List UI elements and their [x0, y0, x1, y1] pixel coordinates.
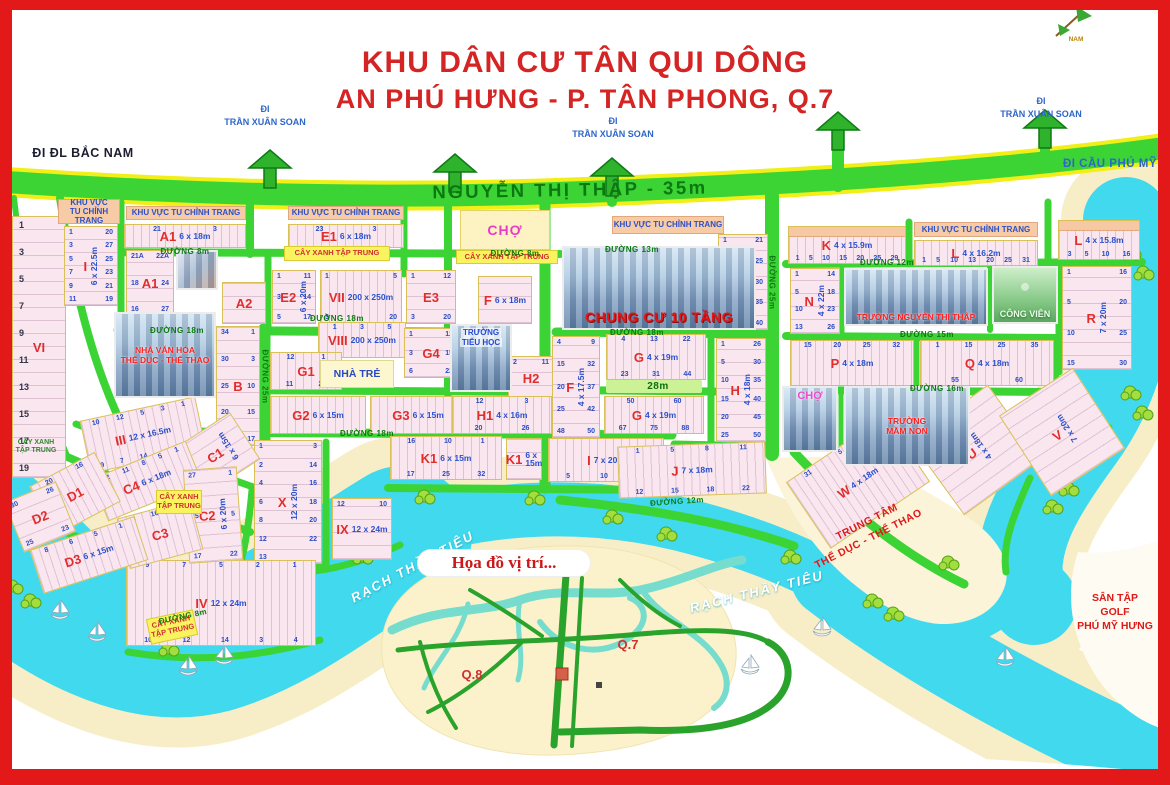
renovation-zone-box-1: KHU VỰCTU CHỈNH TRANG	[58, 199, 120, 224]
direction-di-3: ĐI	[1016, 96, 1066, 106]
block-label-III: III	[114, 432, 127, 447]
block-label-I: I	[587, 454, 591, 467]
direction-tran-xuan-soan-3: TRẦN XUÂN SOAN	[981, 109, 1101, 119]
block-K1-23: 16101172532K16 x 15m	[390, 436, 502, 480]
road-name-label: ĐƯỜNG 18m	[600, 328, 674, 337]
block-E3-8: 112320E3	[406, 270, 456, 324]
block-dimension: 4 x 18m	[849, 465, 880, 489]
block-dimension: 6 x 15m	[216, 431, 240, 462]
block-dimension: 4 x 15.8m	[1085, 236, 1123, 245]
kindergarten-box: NHÀ TRẺ	[320, 360, 394, 388]
market-box: CHỢ	[460, 210, 550, 250]
road-name-label: ĐƯỜNG 18m	[140, 326, 214, 335]
block-label-D1: D1	[65, 484, 86, 503]
block-Q-44: 11525355560Q4 x 18m	[920, 340, 1054, 386]
block-label-C1: C1	[205, 445, 226, 465]
map-title-line1: KHU DÂN CƯ TÂN QUI DÔNG	[0, 46, 1170, 80]
block-dimension: 7 x 18m	[681, 465, 712, 475]
golf-label-2: GOLF	[1072, 606, 1158, 618]
block-dimension: 12 x 24m	[211, 599, 247, 608]
green-area-box-1: CÂY XANH TẬP TRUNG	[284, 246, 390, 261]
block-header-band	[1059, 221, 1139, 231]
renovation-zone-box-2: KHU VỰC TU CHỈNH TRANG	[126, 206, 246, 220]
block-G-21: 5060677588G4 x 19m	[604, 396, 704, 434]
road-name-label: ĐƯỜNG 18m	[330, 429, 404, 438]
apartment-photo: CHUNG CƯ 10 TẦNG	[562, 246, 756, 330]
block-label-Q: Q	[965, 357, 975, 370]
block-V-46: V7 x 20m	[999, 368, 1125, 496]
block-dimension: 4 x 19m	[647, 353, 678, 362]
road-name-label: ĐƯỜNG 15m	[890, 330, 964, 339]
block-IX-28: 1210IX12 x 24m	[332, 498, 392, 560]
block-dimension: 6 x 18m	[179, 232, 210, 241]
block-dimension: 4 x 16.2m	[962, 249, 1000, 258]
golf-label-3: PHÚ MỸ HƯNG	[1058, 620, 1170, 632]
block-label-C4: C4	[121, 478, 141, 496]
road-name-label: 28m	[630, 381, 686, 393]
block-H-22: 1265301035154020452550H4 x 18m	[716, 338, 766, 442]
block-dimension: 4 x 18m	[842, 359, 873, 368]
block-label-G3: G3	[392, 409, 409, 422]
green-area-label-5: CÂY XANHTẬP TRUNG	[12, 438, 60, 456]
block-label-G1: G1	[297, 365, 314, 378]
renovation-zone-box-3: KHU VỰC TU CHỈNH TRANG	[288, 206, 404, 220]
block-N-41: 11451810231326N4 x 22m	[790, 268, 840, 334]
block-label-V: V	[1050, 427, 1064, 443]
block-label-VIII: VIII	[328, 334, 348, 347]
block-dimension: 6 x 15m	[440, 454, 471, 463]
road-name-label: ĐƯỜNG 12m	[850, 258, 924, 267]
map-label-layer: KHU DÂN CƯ TÂN QUI DÔNG AN PHÚ HƯNG - P.…	[0, 0, 1170, 785]
block-label-D3: D3	[63, 552, 83, 570]
block-dimension: 4 x 18m	[978, 359, 1009, 368]
block-H2-17: 211H2	[508, 356, 554, 400]
block-F-19: 491532203725424850F4 x 17.5m	[552, 336, 600, 438]
renovation-zone-box-4: KHU VỰC TU CHỈNH TRANG	[612, 216, 724, 234]
road-name-label: ĐƯỜNG 25m	[768, 246, 777, 320]
block-header-band	[789, 227, 905, 237]
inset-title: Họa đồ vị trí...	[418, 550, 590, 576]
park-photo: CÔNG VIÊN	[992, 266, 1058, 324]
direction-di-1: ĐI	[240, 104, 290, 114]
block-L-39: 151013202531L4 x 16.2m	[914, 240, 1038, 266]
block-X-27: 13214416618820122213X12 x 20m	[254, 440, 322, 564]
block-label-F: F	[484, 294, 492, 307]
block-dimension: 6 x 15m	[525, 451, 542, 468]
road-name-label: ĐƯỜNG 25m	[261, 340, 270, 414]
block-dimension: 6 x 18m	[495, 296, 526, 305]
inset-district-q8: Q.8	[452, 668, 492, 683]
road-name-label: ĐƯỜNG 8m	[150, 247, 220, 256]
block-label-P: P	[831, 357, 840, 370]
photo-thumbnail	[176, 250, 218, 290]
primary-school-photo: TRƯỜNGTIỂU HỌC	[450, 324, 512, 392]
block-dimension: 7 x 20m	[1055, 413, 1079, 444]
main-road-label: NGUYỄN THỊ THẬP - 35m	[400, 176, 740, 203]
block-dimension: 6 x 15m	[413, 411, 444, 420]
road-name-label: ĐƯỜNG 18m	[300, 314, 374, 323]
block-label-W: W	[835, 483, 852, 501]
nguyen-thi-thap-school-photo: TRƯỜNG NGUYỄN THỊ THẬP	[844, 268, 988, 326]
block-dimension: 6 x 18m	[140, 468, 172, 488]
block-label-K: K	[822, 239, 831, 252]
renovation-zone-box-5: KHU VỰC TU CHỈNH TRANG	[914, 222, 1038, 237]
preschool-photo: TRƯỜNGMẦM NON	[844, 386, 970, 466]
road-name-label: ĐƯỜNG 8m	[480, 249, 550, 258]
block-dimension: 6 x 18m	[340, 232, 371, 241]
block-E1-5: 233E16 x 18m	[288, 224, 404, 248]
block-L-40: 351016L4 x 15.8m	[1058, 220, 1140, 260]
block-label-K1: K1	[421, 452, 438, 465]
block-J-26: 1581112151822J7 x 18m	[617, 441, 767, 498]
block-label-G: G	[634, 351, 644, 364]
block-label-K1: K1	[506, 453, 523, 466]
block-label-VI: VI	[33, 341, 45, 354]
block-dimension: 200 x 250m	[351, 336, 396, 345]
block-label-C3: C3	[150, 526, 169, 543]
direction-di-cau-phu-my: ĐI CẦU PHÚ MỸ	[1054, 158, 1166, 171]
block-label-G: G	[632, 409, 642, 422]
market-photo: CHỢ	[782, 386, 838, 452]
block-dimension: 4 x 16m	[496, 411, 527, 420]
direction-di-dl-bac-nam: ĐI ĐL BẮC NAM	[18, 146, 148, 160]
direction-di-2: ĐI	[588, 116, 638, 126]
block-dimension: 6 x 15m	[82, 543, 114, 561]
block-A1-2: 213A16 x 18m	[124, 224, 246, 248]
block-K1-24: K16 x 15m	[506, 438, 542, 480]
block-G-20: 41322233144G4 x 19m	[606, 334, 706, 380]
block-dimension: 6 x 15m	[313, 411, 344, 420]
block-P-43: 15202532P4 x 18m	[790, 340, 914, 386]
direction-tran-xuan-soan-1: TRẦN XUÂN SOAN	[205, 117, 325, 127]
block-label-H1: H1	[477, 409, 494, 422]
block-H1-18: 1232026H14 x 16m	[452, 396, 552, 434]
culture-house-photo: NHÀ VĂN HÓATHỂ DỤC - THỂ THAO	[114, 312, 216, 398]
block-dimension: 4 x 18m	[968, 431, 993, 461]
map-canvas: KHU DÂN CƯ TÂN QUI DÔNG AN PHÚ HƯNG - P.…	[0, 0, 1170, 785]
block-label-L: L	[1074, 234, 1082, 247]
inset-district-q7: Q.7	[608, 638, 648, 653]
block-dimension: 4 x 19m	[645, 411, 676, 420]
block-label-G2: G2	[292, 409, 309, 422]
block-label-J: J	[671, 464, 679, 477]
block-F-9: F6 x 18m	[478, 276, 532, 324]
road-name-label: ĐƯỜNG 13m	[595, 245, 669, 254]
block-I-1: 1203275257239211119I6 x 22.5m	[64, 226, 118, 306]
block-R-42: 11652010251530R7 x 20m	[1062, 266, 1132, 370]
compass-label: NAM	[1058, 36, 1094, 43]
block-dimension: 4 x 15.9m	[834, 241, 872, 250]
block-label-A2: A2	[236, 297, 253, 310]
road-name-label: ĐƯỜNG 16m	[900, 384, 974, 393]
block-A1-3: 21A22A18241627A1	[126, 250, 174, 316]
golf-label-1: SÂN TẬP	[1072, 592, 1158, 604]
direction-tran-xuan-soan-2: TRẦN XUÂN SOAN	[553, 129, 673, 139]
block-A2-4: A2	[222, 282, 266, 324]
block-dimension: 12 x 16.5m	[128, 425, 172, 442]
green-area-box-3: CÂY XANHTẬP TRUNG	[156, 490, 202, 514]
